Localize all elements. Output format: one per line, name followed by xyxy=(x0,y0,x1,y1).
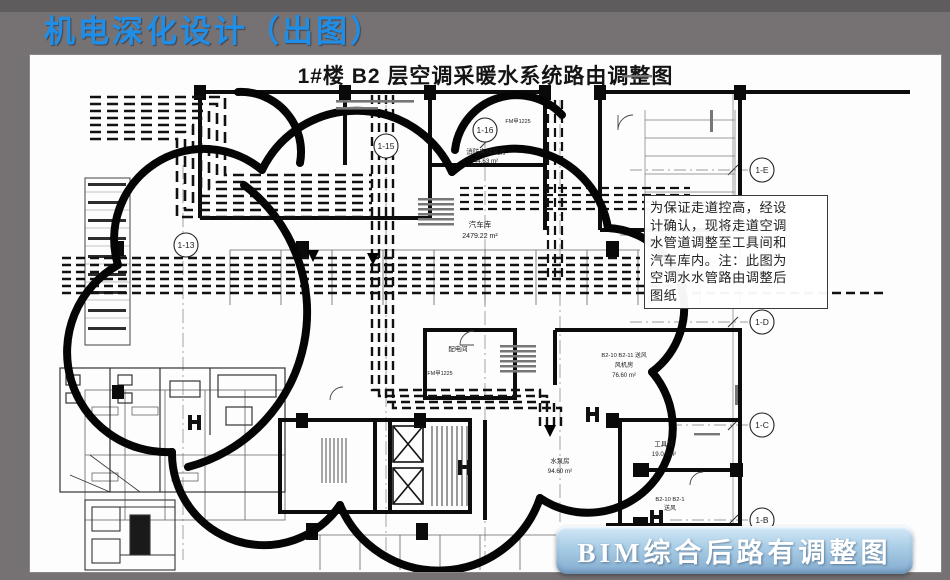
room-supply-tag: B2-10 B2-1 xyxy=(655,497,684,503)
note-line: 水管道调整至工具间和 xyxy=(650,234,822,252)
room-fan-tag: B2-10 B2-11 送风 xyxy=(601,351,647,359)
note-line: 为保证走道控高，经设 xyxy=(650,199,822,217)
grid-bubble-1-16: 1-16 xyxy=(476,125,493,135)
room-supply-name: 送风 xyxy=(664,504,676,512)
room-pump-name: 水泵房 xyxy=(550,456,569,465)
note-line: 图纸 xyxy=(650,287,822,305)
room-fan-area: 76.60 m² xyxy=(612,373,636,379)
floor-plan: 1-13 1-15 1-16 1-E 1-D 1-C 1-B 消防电梯机房 44… xyxy=(30,55,941,572)
note-line: 空调水水管路由调整后 xyxy=(650,269,822,287)
room-tool-area: 19.04 m² xyxy=(652,451,676,458)
room-fire-elevator-name: 消防电梯机房 xyxy=(466,147,506,156)
grid-bubble-1-C: 1-C xyxy=(755,420,769,430)
door-tag-1: FM甲1225 xyxy=(427,370,452,377)
grid-bubble-1-15: 1-15 xyxy=(377,141,394,151)
note-line: 计确认，现将走道空调 xyxy=(650,217,822,235)
revision-note-box: 为保证走道控高，经设 计确认，现将走道空调 水管道调整至工具间和 汽车库内。注：… xyxy=(644,195,828,309)
door-tag-2: FM甲1225 xyxy=(505,118,530,125)
room-tool-name: 工具间 xyxy=(654,440,673,448)
banner-label: BIM综合后路有调整图 xyxy=(578,531,892,570)
slide-header-title: 机电深化设计（出图） xyxy=(44,6,384,51)
grid-bubble-1-13: 1-13 xyxy=(177,240,194,250)
elevator-stair-core xyxy=(322,426,467,506)
bim-adjustment-banner: BIM综合后路有调整图 xyxy=(556,526,913,574)
room-garage-area: 2479.22 m² xyxy=(462,233,498,240)
bottom-left-rooms xyxy=(85,500,175,570)
drawing-sheet: 1#楼 B2 层空调采暖水系统路由调整图 xyxy=(30,55,941,572)
grid-bubble-1-D: 1-D xyxy=(755,317,769,327)
room-garage-name: 汽车库 xyxy=(469,219,492,229)
grid-bubble-1-E: 1-E xyxy=(755,165,769,175)
room-fan-name: 风机房 xyxy=(615,361,634,369)
room-power-name: 配电间 xyxy=(448,344,467,353)
grid-bubble-1-B: 1-B xyxy=(755,515,769,525)
room-fire-elevator-area: 44.63 m² xyxy=(474,158,498,165)
room-pump-area: 94.60 m² xyxy=(548,468,572,475)
presentation-slide: 机电深化设计（出图） 1#楼 B2 层空调采暖水系统路由调整图 xyxy=(0,0,950,580)
note-line: 汽车库内。注：此图为 xyxy=(650,252,822,270)
